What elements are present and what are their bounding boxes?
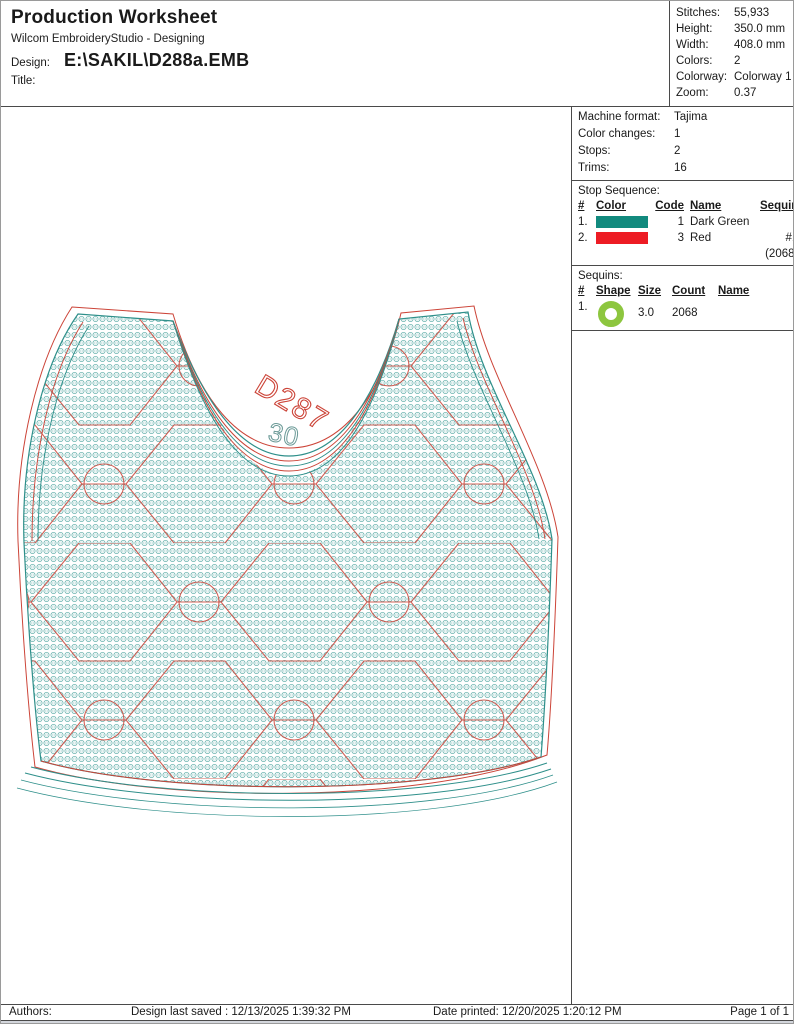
- machine-label: Machine format:: [578, 109, 674, 126]
- sequin-row-num: 1.: [578, 299, 596, 327]
- col-num: #: [578, 199, 596, 214]
- sequin-name: [718, 299, 789, 327]
- stop-sequence-heading: Stop Sequence:: [578, 183, 789, 199]
- stat-label: Zoom:: [676, 85, 734, 101]
- stat-value: 55,933: [734, 5, 794, 21]
- col-name: Name: [684, 199, 760, 214]
- production-worksheet-page: Production Worksheet Wilcom EmbroiderySt…: [0, 0, 794, 1024]
- page-title: Production Worksheet: [11, 7, 659, 29]
- design-canvas: D287 30: [1, 107, 571, 1004]
- machine-value: 1: [674, 126, 680, 143]
- info-panel: Machine format:Tajima Color changes:1 St…: [571, 107, 794, 1004]
- footer-bar: Authors: Design last saved : 12/13/2025 …: [1, 1004, 794, 1021]
- sequin-count: 2068: [672, 299, 718, 327]
- machine-label: Stops:: [578, 143, 674, 160]
- sequin-shape-icon: [596, 299, 638, 327]
- stat-label: Height:: [676, 21, 734, 37]
- machine-label: Color changes:: [578, 126, 674, 143]
- col-shape: Shape: [596, 284, 638, 299]
- col-name: Name: [718, 284, 789, 299]
- design-label: Design:: [11, 57, 50, 69]
- date-printed: Date printed: 12/20/2025 1:20:12 PM: [433, 1005, 622, 1020]
- col-count: Count: [672, 284, 718, 299]
- color-swatch-red: [596, 230, 654, 262]
- col-size: Size: [638, 284, 672, 299]
- machine-value: Tajima: [674, 109, 707, 126]
- stat-label: Width:: [676, 37, 734, 53]
- garment-design: D287 30: [1, 107, 571, 1004]
- page-number: Page 1 of 1: [730, 1005, 789, 1020]
- col-color: Color: [596, 199, 654, 214]
- machine-value: 2: [674, 143, 680, 160]
- stat-label: Colors:: [676, 53, 734, 69]
- stop-row-name: Red: [684, 230, 760, 262]
- col-sequin: Sequin: [760, 199, 794, 214]
- authors-label: Authors:: [9, 1005, 52, 1020]
- stat-value: 0.37: [734, 85, 794, 101]
- sequin-size: 3.0: [638, 299, 672, 327]
- stat-value: 2: [734, 53, 794, 69]
- stat-value: 408.0 mm: [734, 37, 794, 53]
- stat-label: Colorway:: [676, 69, 734, 85]
- stop-sequence-section: Stop Sequence: # Color Code Name Sequin …: [572, 181, 794, 266]
- machine-info-section: Machine format:Tajima Color changes:1 St…: [572, 107, 794, 181]
- header-box: Production Worksheet Wilcom EmbroiderySt…: [1, 1, 670, 107]
- stat-value: 350.0 mm: [734, 21, 794, 37]
- sequins-heading: Sequins:: [578, 268, 789, 284]
- stop-row-sequin: [760, 214, 794, 230]
- stat-label: Stitches:: [676, 5, 734, 21]
- color-swatch-dark-green: [596, 214, 654, 230]
- design-size-label: 30: [266, 417, 302, 453]
- stop-row-code: 1: [654, 214, 684, 230]
- col-code: Code: [654, 199, 684, 214]
- stop-row-num: 1.: [578, 214, 596, 230]
- machine-label: Trims:: [578, 160, 674, 177]
- stop-row-code: 3: [654, 230, 684, 262]
- stop-row-name: Dark Green: [684, 214, 760, 230]
- stop-row-num: 2.: [578, 230, 596, 262]
- stop-row-sequin: #1 (2068): [760, 230, 794, 262]
- title-label: Title:: [11, 75, 659, 87]
- design-path: E:\SAKIL\D288a.EMB: [64, 50, 249, 71]
- app-subtitle: Wilcom EmbroideryStudio - Designing: [11, 33, 659, 45]
- stat-value: Colorway 1: [734, 69, 794, 85]
- col-num: #: [578, 284, 596, 299]
- design-last-saved: Design last saved : 12/13/2025 1:39:32 P…: [131, 1005, 351, 1020]
- stats-box: Stitches:55,933 Height:350.0 mm Width:40…: [670, 1, 794, 107]
- sequin-lattice-overlay: [1, 287, 571, 807]
- sequins-section: Sequins: # Shape Size Count Name 1. 3.0 …: [572, 266, 794, 331]
- machine-value: 16: [674, 160, 687, 177]
